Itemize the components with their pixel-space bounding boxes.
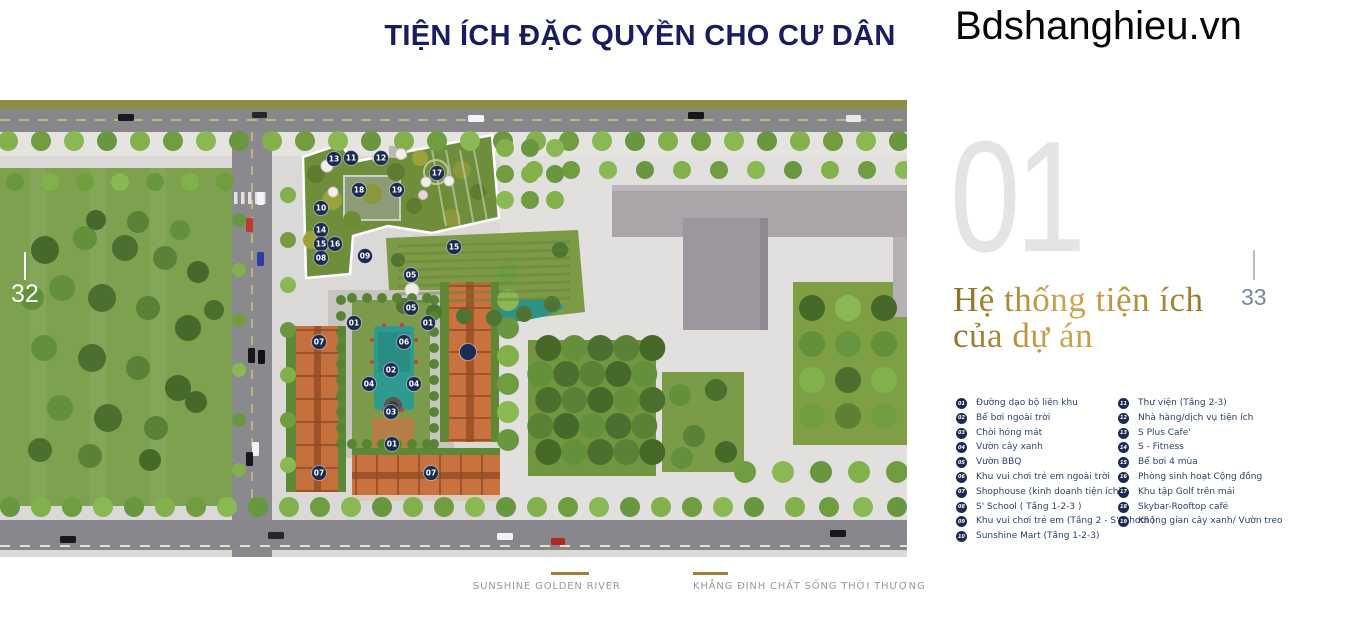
legend-item: 13S Plus Cafe' [1118,428,1282,439]
legend-item: 17Khu tập Golf trên mái [1118,487,1282,498]
legend-item-number: 05 [956,457,967,468]
legend-item-label: Bể bơi 4 mùa [1138,457,1198,468]
map-marker-label: 06 [399,338,409,347]
page-number-left: 32 [11,280,39,309]
map-marker-label: 01 [423,319,433,328]
legend-item-number: 06 [956,472,967,483]
map-marker-label: 17 [432,169,442,178]
legend-item-number: 16 [1118,472,1129,483]
map-marker-label: 15 [316,240,326,249]
page-number-right: 33 [1241,284,1267,311]
map-marker-label: 16 [330,240,340,249]
map-marker-label: 19 [392,186,402,195]
legend-item-number: 10 [956,531,967,542]
page-number-line-left [24,252,26,280]
legend-item-number: 04 [956,442,967,453]
map-marker-label: 05 [406,304,416,313]
map-marker-label: 04 [364,380,374,389]
legend-item-label: Nhà hàng/dịch vụ tiện ích [1138,413,1253,424]
legend-item-label: Bể bơi ngoài trời [976,413,1050,424]
footer-gold-line-left [551,572,589,575]
legend-item-number: 08 [956,502,967,513]
legend-item-number: 19 [1118,516,1129,527]
map-bottom-road [0,520,907,550]
map-marker-label: 08 [316,254,326,263]
legend-item-label: Đường dạo bộ liên khu [976,398,1078,409]
legend-item-label: Vườn cây xanh [976,442,1043,453]
section-heading-line2: của dự án [953,318,1204,354]
map-marker-label: 12 [376,154,386,163]
legend-item-number: 03 [956,428,967,439]
map-marker-label: 09 [360,252,370,261]
legend-item-label: Không gian cây xanh/ Vườn treo [1138,516,1282,527]
map-marker-label: 01 [387,440,397,449]
page-number-line-right [1253,250,1255,280]
legend-item-number: 18 [1118,502,1129,513]
site-plan-container: 1311121718191014151608090515050101070602… [0,100,907,557]
map-marker-label: 01 [349,319,359,328]
footer-slogan: KHẲNG ĐỊNH CHẤT SỐNG THỜI THƯỢNG [693,581,926,592]
map-top-verge [0,100,907,109]
map-marker-label: 07 [314,469,324,478]
legend-item-label: Khu vui chơi trẻ em ngoài trời [976,472,1110,483]
map-marker-label: 04 [409,380,419,389]
legend-item-label: S Plus Cafe' [1138,428,1191,439]
legend-column-2: 11Thư viện (Tầng 2-3)12Nhà hàng/dịch vụ … [1118,398,1282,531]
legend-item: 14S - Fitness [1118,442,1282,453]
map-marker-label: 11 [346,154,356,163]
map-marker-label: 05 [406,271,416,280]
legend-item-number: 09 [956,516,967,527]
legend-item-label: Khu tập Golf trên mái [1138,487,1235,498]
map-marker-label: 14 [316,226,326,235]
legend-item-number: 13 [1118,428,1129,439]
legend-item-label: Thư viện (Tầng 2-3) [1138,398,1227,409]
legend-item: 11Thư viện (Tầng 2-3) [1118,398,1282,409]
legend-item-label: S' School ( Tầng 1-2-3 ) [976,502,1082,513]
map-marker-label: 13 [329,155,339,164]
map-marker-label: 15 [449,243,459,252]
legend-item-number: 17 [1118,487,1129,498]
map-marker-label: 18 [354,186,364,195]
map-marker-label: 07 [426,469,436,478]
legend-item: 15Bể bơi 4 mùa [1118,457,1282,468]
legend-item: 19Không gian cây xanh/ Vườn treo [1118,516,1282,527]
legend-item-label: Chòi hóng mát [976,428,1042,439]
legend-item: 12Nhà hàng/dịch vụ tiện ích [1118,413,1282,424]
section-heading-line1: Hệ thống tiện ích [953,282,1204,318]
watermark-text: Bdshanghieu.vn [955,4,1242,49]
legend-item-label: Sunshine Mart (Tầng 1-2-3) [976,531,1099,542]
legend-item-label: Skybar-Rooftop café [1138,502,1228,513]
legend-item-number: 15 [1118,457,1129,468]
legend-item-number: 07 [956,487,967,498]
map-marker-label: 07 [314,338,324,347]
legend-item-label: S - Fitness [1138,442,1184,453]
legend-item: 10Sunshine Mart (Tầng 1-2-3) [956,531,1155,542]
legend-item-number: 01 [956,398,967,409]
legend-item-label: Phòng sinh hoạt Cộng đồng [1138,472,1262,483]
legend-item-number: 02 [956,413,967,424]
page-title: TIỆN ÍCH ĐẶC QUYỀN CHO CƯ DÂN [260,20,1020,53]
map-marker [460,344,477,361]
footer-brand: SUNSHINE GOLDEN RIVER [473,581,621,592]
legend-item: 18Skybar-Rooftop café [1118,502,1282,513]
legend-item-label: Shophouse (kinh doanh tiện ích) [976,487,1122,498]
legend-item-number: 12 [1118,413,1129,424]
legend-item-number: 14 [1118,442,1129,453]
footer-gold-line-right [693,572,728,575]
site-plan-map: 1311121718191014151608090515050101070602… [0,100,907,557]
legend-item-label: Vườn BBQ [976,457,1021,468]
map-marker-label: 02 [386,366,396,375]
legend-item-number: 11 [1118,398,1129,409]
map-marker-label: 10 [316,204,326,213]
map-marker-label: 03 [386,408,396,417]
section-heading: Hệ thống tiện ích của dự án [953,282,1204,355]
legend-item: 16Phòng sinh hoạt Cộng đồng [1118,472,1282,483]
section-number: 01 [950,118,1081,276]
